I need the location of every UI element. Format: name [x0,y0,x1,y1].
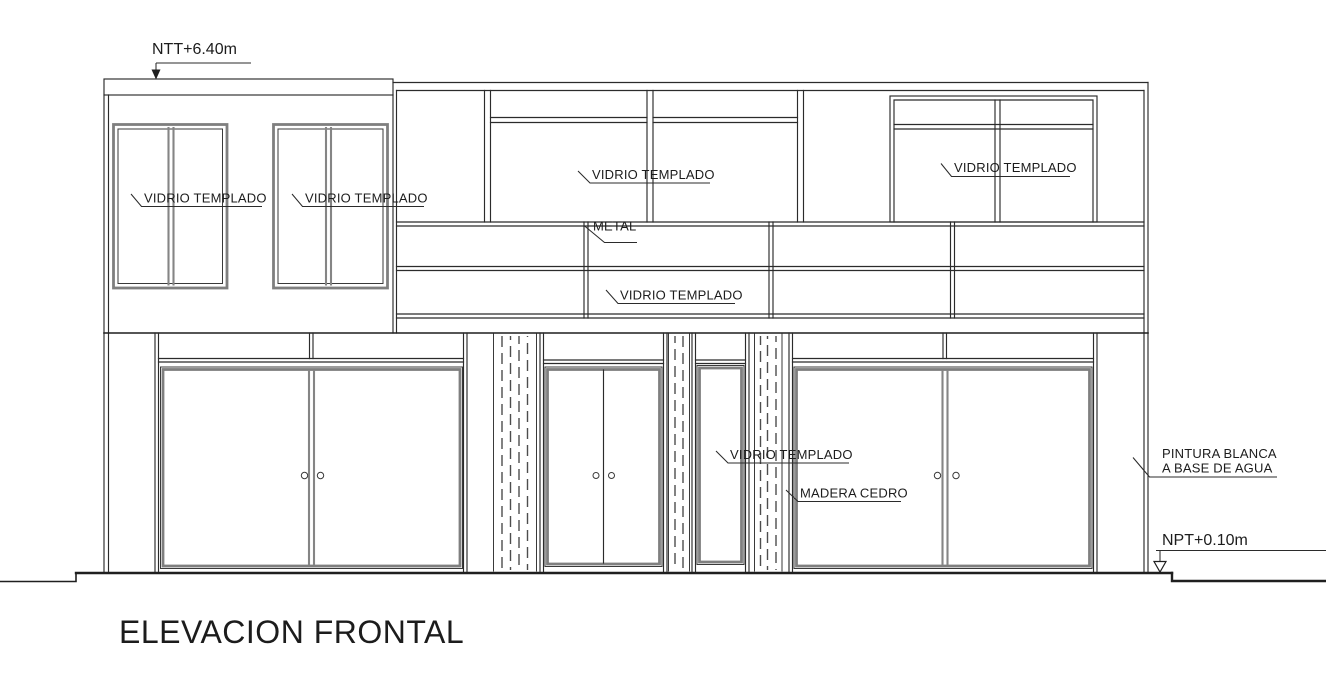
door-frame [700,368,742,562]
ntt-level-label: NTT+6.40m [152,41,237,58]
door-outer-edge [697,366,744,565]
window-transom [894,125,1093,130]
upper-curtain-wall [485,91,804,223]
door-handle-right [609,473,615,479]
door-center-mullion [309,370,314,565]
wood-column-2 [669,334,690,572]
transom-center-mullion [943,333,947,359]
door-transom [696,360,746,364]
door-frame [163,370,460,567]
column-borders [494,334,537,572]
paint-label-line1: PINTURA BLANCA [1162,446,1277,461]
glass-label-tower-left: VIDRIO TEMPLADO [144,191,267,206]
door-handle-right [953,472,959,478]
tower-right-edge [393,91,397,334]
door-center-mullion [943,370,948,565]
elevation-drawing: NTT+6.40m VIDRIO TEMPLADO VIDRIO TEMPLAD… [0,0,1326,673]
glass-label-tower-right: VIDRIO TEMPLADO [305,191,428,206]
door-handle-left [301,472,307,478]
elevation-drawing-page: NTT+6.40m VIDRIO TEMPLADO VIDRIO TEMPLAD… [0,0,1326,673]
spandrel-bands [397,222,1145,318]
glass-label-spandrel: VIDRIO TEMPLADO [620,288,743,303]
door-outer-edge [161,367,463,569]
window-outer-frame [890,96,1097,222]
spandrel-band-rails [397,222,1145,318]
npt-leader-line [1156,551,1326,573]
door-transom [544,360,664,364]
column-borders [669,334,690,572]
ntt-down-arrow-icon [152,70,161,80]
npt-level-mark-icon [1154,562,1166,573]
storefront-transom [159,359,464,363]
upper-right-window [890,96,1097,222]
ground-line-left-step [0,573,76,582]
storefront-left [155,333,467,572]
door-handle-left [593,473,599,479]
transom-center-mullion [310,333,314,359]
glass-label-ground: VIDRIO TEMPLADO [730,447,853,462]
ground-line-right-step [1172,573,1326,581]
door-handle-left [934,472,940,478]
wood-label: MADERA CEDRO [800,486,908,501]
entrance-double-door [540,333,667,572]
drawing-title: ELEVACION FRONTAL [119,614,464,650]
glass-label-curtain-wall: VIDRIO TEMPLADO [592,167,715,182]
main-parapet-band [393,83,1148,91]
glass-label-upper-right: VIDRIO TEMPLADO [954,160,1077,175]
door-handle-right [317,472,323,478]
tower-parapet-band [104,79,393,95]
curtain-wall-mullions [485,91,804,223]
curtain-wall-transoms [491,118,798,123]
ntt-leader-line [156,63,251,71]
right-wall [1144,83,1148,573]
paint-label-line2: A BASE DE AGUA [1162,461,1273,476]
annotations: NTT+6.40m VIDRIO TEMPLADO VIDRIO TEMPLAD… [131,41,1326,572]
wood-column-1 [494,334,537,572]
npt-level-label: NPT+0.10m [1162,532,1248,549]
metal-label: METAL [593,219,636,234]
